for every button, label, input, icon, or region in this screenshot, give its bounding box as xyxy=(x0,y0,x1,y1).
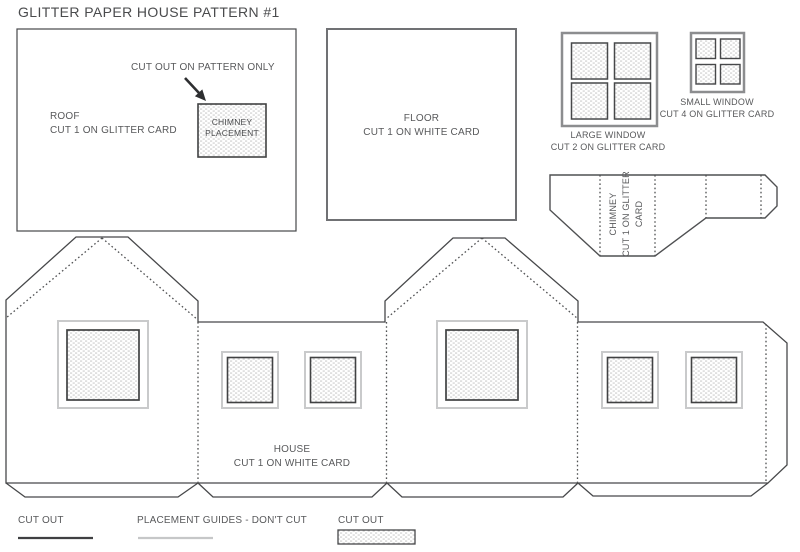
small-window-label-line2: CUT 4 ON GLITTER CARD xyxy=(657,108,777,120)
small-window-label: SMALL WINDOW CUT 4 ON GLITTER CARD xyxy=(657,96,777,120)
floor-label-line2: CUT 1 ON WHITE CARD xyxy=(327,126,516,140)
pattern-sheet: GLITTER PAPER HOUSE PATTERN #1 CUT OUT O… xyxy=(0,0,800,552)
chimney-label-line2: CUT 1 ON GLITTER xyxy=(620,169,633,259)
chimney-label-line3: CARD xyxy=(633,169,646,259)
house-large-window-2 xyxy=(437,321,527,408)
roof-piece-label: ROOF CUT 1 ON GLITTER CARD xyxy=(50,110,177,138)
chimney-placement-label: CHIMNEY PLACEMENT xyxy=(198,117,266,139)
chimney-piece-shape xyxy=(550,175,777,256)
chimney-label-line1: CHIMNEY xyxy=(607,169,620,259)
floor-label-line1: FLOOR xyxy=(327,112,516,126)
large-window-piece xyxy=(562,33,657,126)
house-small-window-4 xyxy=(686,352,742,408)
roof-label-line1: ROOF xyxy=(50,110,177,124)
house-small-window-3 xyxy=(602,352,658,408)
floor-piece-label: FLOOR CUT 1 ON WHITE CARD xyxy=(327,112,516,140)
large-window-label-line2: CUT 2 ON GLITTER CARD xyxy=(548,141,668,153)
house-small-window-1 xyxy=(222,352,278,408)
chimney-placement-line1: CHIMNEY xyxy=(198,117,266,128)
house-bottom-flaps xyxy=(6,483,768,497)
chimney-placement-line2: PLACEMENT xyxy=(198,128,266,139)
legend-cutout-swatch xyxy=(338,530,415,544)
roof-label-line2: CUT 1 ON GLITTER CARD xyxy=(50,124,177,138)
large-window-label: LARGE WINDOW CUT 2 ON GLITTER CARD xyxy=(548,129,668,153)
small-window-piece xyxy=(691,33,744,92)
large-window-label-line1: LARGE WINDOW xyxy=(548,129,668,141)
small-window-label-line1: SMALL WINDOW xyxy=(657,96,777,108)
page-title: GLITTER PAPER HOUSE PATTERN #1 xyxy=(18,4,280,20)
roof-note-label: CUT OUT ON PATTERN ONLY xyxy=(131,61,275,75)
house-small-window-2 xyxy=(305,352,361,408)
chimney-piece-label: CHIMNEY CUT 1 ON GLITTER CARD xyxy=(607,169,647,259)
legend-swatch-label: CUT OUT xyxy=(338,514,384,528)
pattern-drawing xyxy=(0,0,800,552)
legend-cut-label: CUT OUT xyxy=(18,514,64,528)
house-label-line2: CUT 1 ON WHITE CARD xyxy=(212,457,372,471)
house-piece-label: HOUSE CUT 1 ON WHITE CARD xyxy=(212,443,372,471)
house-label-line1: HOUSE xyxy=(212,443,372,457)
legend-placement-label: PLACEMENT GUIDES - DON'T CUT xyxy=(137,514,307,528)
house-large-window-1 xyxy=(58,321,148,408)
